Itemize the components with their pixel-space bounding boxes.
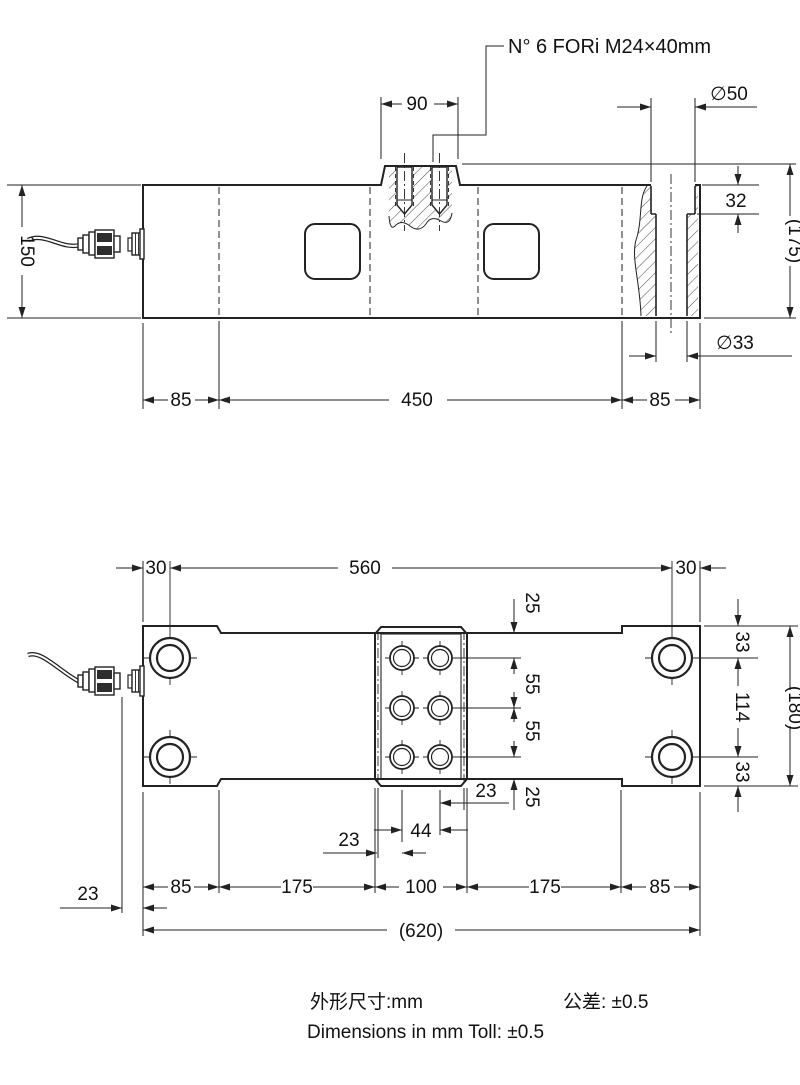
plate-holes [385,641,521,774]
dim-25t-label: 25 [521,592,542,613]
dim-150-label: 150 [16,235,37,267]
dim-23r-label: 23 [475,781,496,802]
dim-33b-label: 33 [731,761,752,782]
top-view: 30 560 30 25 55 55 25 23 44 23 23 [28,558,800,942]
dim-100-label: 100 [405,877,437,898]
dim-175-label: (175) [784,219,800,263]
dim-dia50-label: ∅50 [710,84,748,105]
dim-90-label: 90 [406,94,427,115]
dim-55b-label: 55 [521,720,542,741]
dim-560-label: 560 [349,558,381,579]
dim-180-label: (180) [784,686,800,730]
dim-23l-label: 23 [338,830,359,851]
footer-cn-tol: 公差: ±0.5 [563,991,648,1013]
technical-drawing: N° 6 FORi M24×40mm 90 ∅50 32 (175) 150 ∅… [0,0,800,1085]
footer-en: Dimensions in mm Toll: ±0.5 [307,1022,544,1043]
through-hole-cavity [656,214,687,316]
cable-connector-top [28,654,144,696]
dim-33t-label: 33 [731,631,752,652]
dim-175l-label: 175 [281,877,313,898]
footer-notes: 外形尺寸:mm 公差: ±0.5 Dimensions in mm Toll: … [307,991,648,1043]
drawing-page: N° 6 FORi M24×40mm 90 ∅50 32 (175) 150 ∅… [0,0,800,1085]
dim-23conn-label: 23 [77,884,98,905]
footer-cn-size: 外形尺寸:mm [310,991,423,1013]
dim-85l-label: 85 [170,390,191,411]
gauge-pocket-left [305,224,360,279]
socket-flange [140,229,144,259]
dim-25b-label: 25 [521,786,542,807]
dim-55a-label: 55 [521,673,542,694]
side-view: N° 6 FORi M24×40mm 90 ∅50 32 (175) 150 ∅… [7,36,800,411]
dim-85r-label: 85 [649,390,670,411]
dim-175r-label: 175 [529,877,561,898]
center-plate [375,627,467,786]
dim-32-label: 32 [725,191,746,212]
dim-114-label: 114 [731,692,752,723]
dim-30l-label: 30 [145,558,166,579]
dim-620-label: (620) [399,921,443,942]
dim-30r-label: 30 [675,558,696,579]
dim-44-label: 44 [410,821,432,842]
extension-lines-top [122,561,798,936]
dim-85br-label: 85 [649,877,670,898]
counterbore-cavity [651,184,695,214]
dim-85bl-label: 85 [170,877,191,898]
gauge-pocket-right [484,224,539,279]
dim-dia33-label: ∅33 [716,333,754,354]
callout-label: N° 6 FORi M24×40mm [508,36,711,58]
beam-body-top [143,626,700,786]
socket-flange [140,666,144,696]
dim-450-label: 450 [401,390,433,411]
cable-connector-side [28,229,144,259]
